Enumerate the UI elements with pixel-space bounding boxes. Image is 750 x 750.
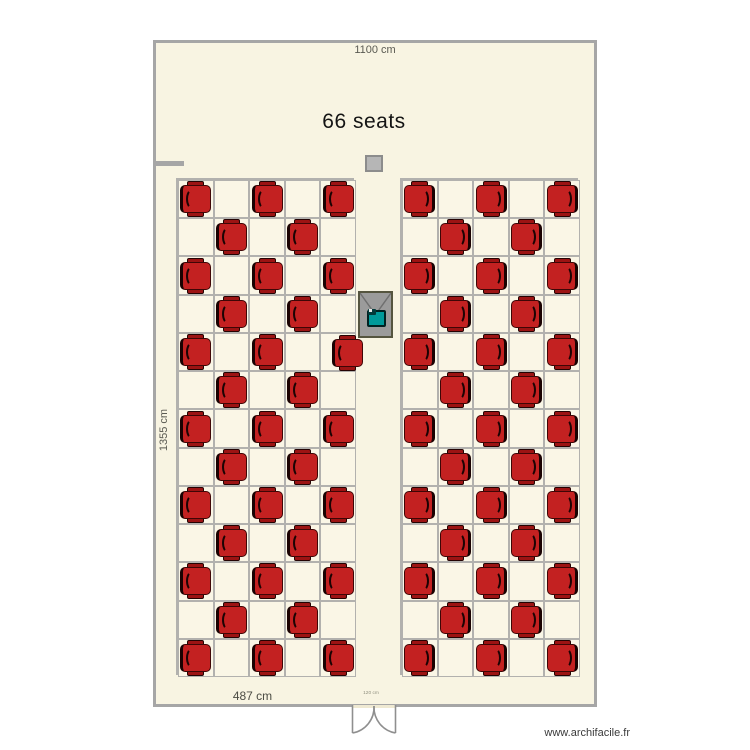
chair-back — [293, 457, 305, 477]
wall-stub — [153, 161, 184, 166]
grid-cell — [544, 371, 580, 409]
lecturer-desk-icon[interactable] — [358, 291, 393, 338]
chair-back — [489, 266, 501, 286]
grid-cell — [402, 524, 438, 562]
chair-seat-icon[interactable] — [546, 411, 579, 447]
grid-cell — [214, 486, 250, 524]
chair-back — [524, 610, 536, 630]
grid-cell — [285, 409, 321, 447]
chair-seat-icon[interactable] — [179, 258, 212, 294]
chair-back — [329, 189, 341, 209]
grid-cell — [544, 448, 580, 486]
chair-seat-icon[interactable] — [322, 411, 355, 447]
chair-seat-icon[interactable] — [403, 334, 436, 370]
chair-back — [489, 189, 501, 209]
chair-seat-icon[interactable] — [403, 563, 436, 599]
chair-back — [524, 227, 536, 247]
grid-cell — [544, 218, 580, 256]
watermark: www.archifacile.fr — [544, 727, 630, 739]
chair-back — [258, 419, 270, 439]
chair-seat-icon[interactable] — [475, 181, 508, 217]
grid-cell — [438, 639, 474, 677]
grid-cell — [438, 256, 474, 294]
grid-cell — [178, 371, 214, 409]
grid-cell — [438, 409, 474, 447]
chair-back — [186, 419, 198, 439]
grid-cell — [473, 218, 509, 256]
grid-cell — [509, 409, 545, 447]
grid-cell — [214, 562, 250, 600]
chair-seat-icon[interactable] — [251, 487, 284, 523]
chair-back — [258, 342, 270, 362]
chair-seat-icon[interactable] — [215, 525, 248, 561]
chair-back — [453, 610, 465, 630]
chair-back — [258, 189, 270, 209]
grid-cell — [285, 256, 321, 294]
grid-cell — [509, 639, 545, 677]
chair-seat-icon[interactable] — [475, 640, 508, 676]
grid-cell — [473, 601, 509, 639]
chair-seat-icon[interactable] — [179, 563, 212, 599]
grid-cell — [320, 218, 356, 256]
grid-cell — [402, 601, 438, 639]
chair-seat-icon[interactable] — [215, 219, 248, 255]
chair-seat-icon[interactable] — [251, 411, 284, 447]
grid-cell — [544, 295, 580, 333]
chair-seat-icon[interactable] — [215, 372, 248, 408]
grid-cell — [473, 371, 509, 409]
chair-seat-icon[interactable] — [322, 487, 355, 523]
chair-seat-icon[interactable] — [403, 640, 436, 676]
grid-cell — [438, 333, 474, 371]
chair-seat-icon[interactable] — [510, 219, 543, 255]
chair-seat-icon[interactable] — [179, 181, 212, 217]
chair-seat-icon[interactable] — [510, 449, 543, 485]
chair-back — [258, 495, 270, 515]
chair-back — [524, 304, 536, 324]
chair-seat-icon[interactable] — [179, 411, 212, 447]
chair-seat-icon[interactable] — [510, 296, 543, 332]
grid-cell — [402, 218, 438, 256]
grid-cell — [214, 409, 250, 447]
grid-cell — [509, 256, 545, 294]
chair-seat-icon[interactable] — [179, 334, 212, 370]
grid-cell — [402, 448, 438, 486]
grid-cell — [320, 601, 356, 639]
chair-back — [453, 457, 465, 477]
grid-cell — [214, 256, 250, 294]
chair-seat-icon[interactable] — [251, 258, 284, 294]
grid-cell — [285, 562, 321, 600]
chair-seat-icon[interactable] — [322, 563, 355, 599]
dimension-top: 1100 cm — [153, 44, 597, 56]
grid-cell — [249, 371, 285, 409]
chair-seat-icon[interactable] — [510, 372, 543, 408]
chair-seat-icon[interactable] — [510, 525, 543, 561]
chair-seat-icon[interactable] — [251, 563, 284, 599]
chair-back — [222, 457, 234, 477]
chair-back — [524, 457, 536, 477]
dimension-door: 120 cm — [353, 691, 390, 696]
chair-seat-icon[interactable] — [179, 640, 212, 676]
chair-back — [524, 533, 536, 553]
chair-seat-icon[interactable] — [546, 258, 579, 294]
chair-seat-icon[interactable] — [475, 258, 508, 294]
chair-back — [329, 648, 341, 668]
chair-seat-icon[interactable] — [546, 487, 579, 523]
chair-seat-icon[interactable] — [546, 640, 579, 676]
chair-seat-icon[interactable] — [322, 640, 355, 676]
chair-seat-icon[interactable] — [403, 181, 436, 217]
chair-seat-icon[interactable] — [510, 602, 543, 638]
chair-seat-icon[interactable] — [403, 411, 436, 447]
chair-seat-icon[interactable] — [251, 640, 284, 676]
chair-seat-icon[interactable] — [322, 258, 355, 294]
chair-back — [560, 342, 572, 362]
chair-back — [560, 648, 572, 668]
chair-back — [453, 227, 465, 247]
chair-back — [489, 342, 501, 362]
grid-cell — [249, 524, 285, 562]
chair-back — [222, 533, 234, 553]
chair-back — [329, 571, 341, 591]
page-title: 66 seats — [142, 110, 586, 134]
grid-cell — [402, 295, 438, 333]
chair-seat-icon[interactable] — [439, 372, 472, 408]
chair-back — [329, 266, 341, 286]
grid-cell — [285, 333, 321, 371]
grid-cell — [509, 333, 545, 371]
chair-seat-icon[interactable] — [251, 334, 284, 370]
chair-seat-icon[interactable] — [403, 487, 436, 523]
chair-seat-icon[interactable] — [546, 181, 579, 217]
chair-seat-icon[interactable] — [439, 449, 472, 485]
grid-cell — [178, 448, 214, 486]
grid-cell — [438, 180, 474, 218]
double-door-icon[interactable] — [351, 705, 397, 743]
chair-back — [329, 495, 341, 515]
chair-back — [489, 495, 501, 515]
chair-back — [560, 419, 572, 439]
chair-seat-icon[interactable] — [179, 487, 212, 523]
chair-back — [258, 266, 270, 286]
chair-back — [560, 189, 572, 209]
grid-cell — [402, 371, 438, 409]
grid-cell — [509, 562, 545, 600]
chair-seat-icon[interactable] — [403, 258, 436, 294]
grid-cell — [509, 180, 545, 218]
grid-cell — [473, 448, 509, 486]
chair-seat-icon[interactable] — [251, 181, 284, 217]
grid-cell — [544, 524, 580, 562]
chair-back — [560, 495, 572, 515]
grid-cell — [285, 639, 321, 677]
laptop-icon — [367, 310, 386, 327]
chair-seat-icon[interactable] — [286, 296, 319, 332]
grid-cell — [249, 448, 285, 486]
chair-back — [560, 571, 572, 591]
chair-back — [489, 571, 501, 591]
laptop-glint — [369, 309, 372, 312]
grid-cell — [178, 524, 214, 562]
chair-back — [293, 304, 305, 324]
chair-back — [453, 304, 465, 324]
chair-seat-icon[interactable] — [439, 525, 472, 561]
chair-seat-icon[interactable] — [331, 335, 364, 371]
chair-back — [258, 648, 270, 668]
chair-seat-icon[interactable] — [475, 411, 508, 447]
grid-cell — [214, 639, 250, 677]
chair-back — [453, 533, 465, 553]
chair-seat-icon[interactable] — [439, 219, 472, 255]
chair-seat-icon[interactable] — [475, 563, 508, 599]
chair-seat-icon[interactable] — [475, 334, 508, 370]
column-icon[interactable] — [365, 155, 383, 172]
chair-back — [489, 419, 501, 439]
grid-cell — [473, 295, 509, 333]
dimension-bottom: 487 cm — [200, 689, 305, 703]
chair-seat-icon[interactable] — [286, 449, 319, 485]
chair-back — [329, 419, 341, 439]
chair-back — [560, 266, 572, 286]
grid-cell — [178, 218, 214, 256]
chair-seat-icon[interactable] — [322, 181, 355, 217]
floorplan-canvas: 1100 cm 1355 cm 487 cm 120 cm 66 seats w… — [0, 0, 750, 750]
chair-back — [524, 380, 536, 400]
grid-cell — [438, 486, 474, 524]
chair-back — [222, 610, 234, 630]
grid-cell — [320, 448, 356, 486]
grid-cell — [178, 295, 214, 333]
chair-back — [258, 571, 270, 591]
grid-cell — [320, 524, 356, 562]
grid-cell — [320, 371, 356, 409]
chair-seat-icon[interactable] — [475, 487, 508, 523]
chair-seat-icon[interactable] — [286, 602, 319, 638]
chair-seat-icon[interactable] — [286, 525, 319, 561]
grid-cell — [214, 333, 250, 371]
chair-seat-icon[interactable] — [215, 296, 248, 332]
dimension-left: 1355 cm — [158, 404, 170, 456]
grid-cell — [473, 524, 509, 562]
chair-seat-icon[interactable] — [286, 372, 319, 408]
chair-seat-icon[interactable] — [215, 602, 248, 638]
chair-seat-icon[interactable] — [439, 602, 472, 638]
grid-cell — [509, 486, 545, 524]
grid-cell — [249, 218, 285, 256]
chair-seat-icon[interactable] — [439, 296, 472, 332]
seat-grid — [400, 178, 578, 675]
grid-cell — [320, 295, 356, 333]
seat-grid — [176, 178, 354, 675]
grid-cell — [285, 180, 321, 218]
chair-back — [222, 380, 234, 400]
chair-back — [222, 304, 234, 324]
grid-cell — [249, 295, 285, 333]
grid-cell — [438, 562, 474, 600]
grid-cell — [285, 486, 321, 524]
door-swing — [351, 705, 397, 743]
grid-cell — [214, 180, 250, 218]
chair-back — [186, 266, 198, 286]
chair-back — [293, 610, 305, 630]
chair-seat-icon[interactable] — [215, 449, 248, 485]
chair-back — [489, 648, 501, 668]
grid-cell — [178, 601, 214, 639]
grid-cell — [544, 601, 580, 639]
chair-seat-icon[interactable] — [546, 334, 579, 370]
chair-seat-icon[interactable] — [546, 563, 579, 599]
grid-cell — [249, 601, 285, 639]
chair-back — [453, 380, 465, 400]
chair-back — [338, 343, 350, 363]
chair-seat-icon[interactable] — [286, 219, 319, 255]
